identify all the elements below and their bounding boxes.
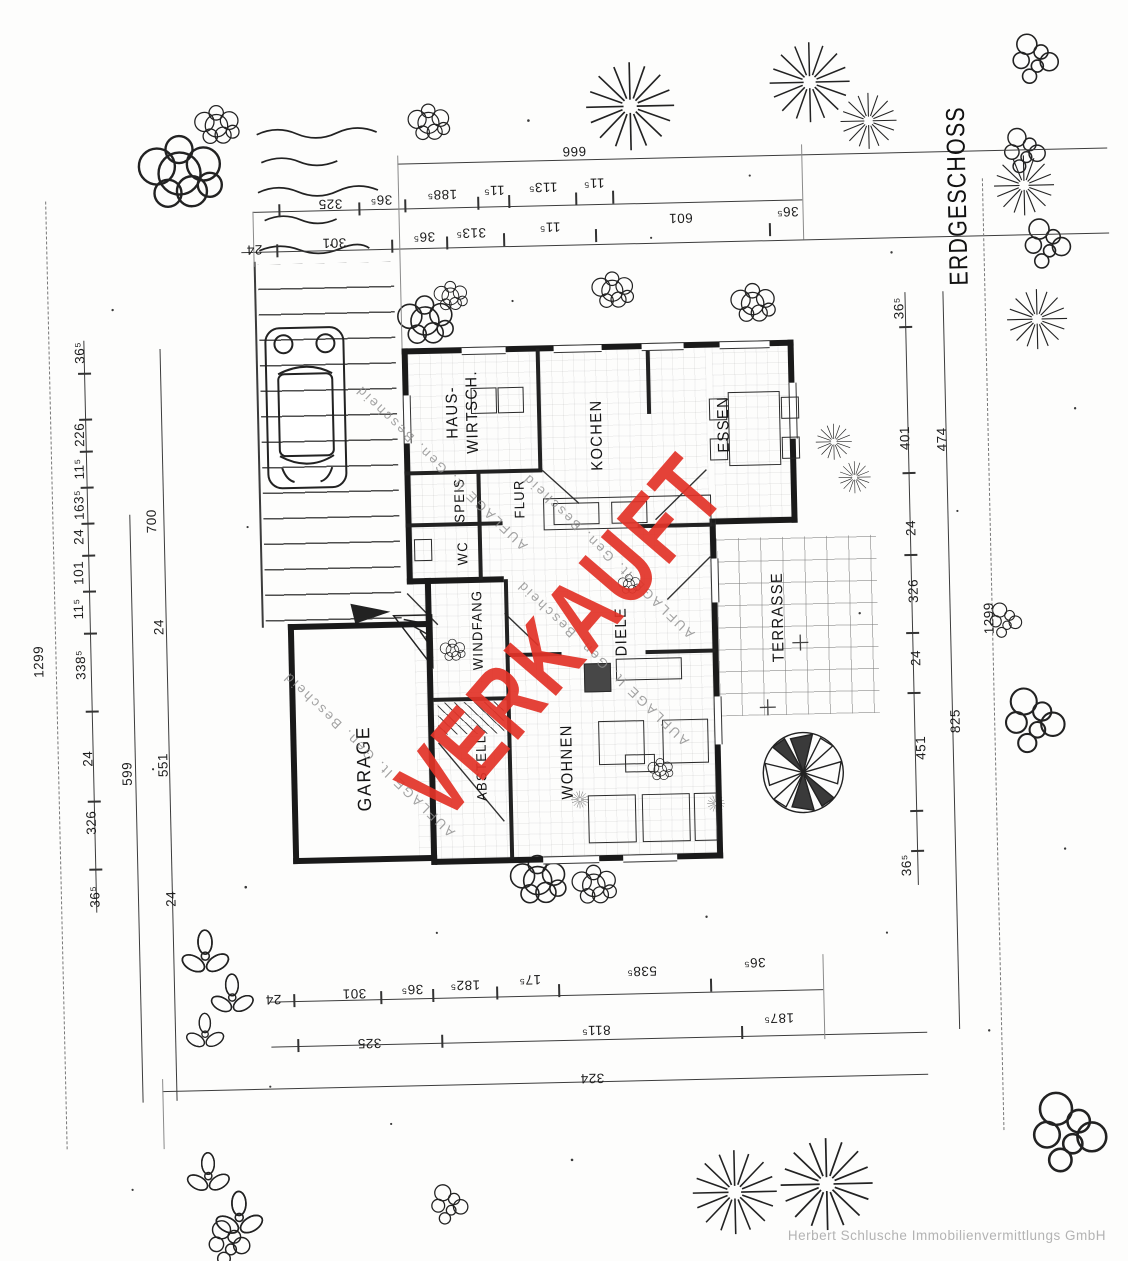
sunburst-tree-icon [993, 155, 1054, 216]
dim-label: 324 [580, 1071, 604, 1087]
dim-tick [81, 487, 94, 489]
dim-tick [911, 850, 924, 852]
dim-label: 811⁵ [581, 1022, 610, 1038]
dim-tick [78, 373, 91, 375]
dim-label: 700 [144, 509, 160, 533]
plan-title: ERDGESCHOSS [940, 106, 975, 286]
scribble-tree-icon [731, 283, 776, 322]
dim-tick [503, 233, 505, 246]
dim-tick [404, 199, 406, 212]
chair [782, 437, 800, 459]
dim-label: 36⁵ [743, 955, 765, 970]
dim-label: 36⁵ [72, 342, 87, 364]
flower-icon [184, 1152, 232, 1194]
dim-label: 17⁵ [519, 972, 541, 987]
coffee-table [625, 754, 655, 773]
dim-tick [432, 989, 434, 1002]
dim-tick [81, 523, 94, 525]
dim-tick [595, 229, 597, 242]
scan-content: 666 325 36⁵ 188⁵ 11⁵ 113⁵ 11⁵ 24 301 36⁵… [0, 0, 1128, 1261]
scribble-tree-icon [138, 135, 222, 207]
dim-label: 36⁵ [776, 204, 798, 219]
dim-tick [558, 984, 560, 997]
dim-label: 11⁵ [71, 598, 86, 619]
dim-tick [446, 236, 448, 249]
dim-label: 113⁵ [528, 179, 557, 195]
dim-tick [508, 195, 510, 208]
dim-label: 1299 [981, 602, 997, 634]
window [543, 855, 599, 864]
dim-label: 326 [83, 811, 99, 835]
dim-label: 325 [318, 196, 342, 212]
flower-icon [208, 974, 256, 1016]
dim-label: 601 [669, 210, 693, 226]
bush-icon [1033, 1092, 1107, 1172]
dim-tick [910, 810, 923, 812]
dim-tick [79, 419, 92, 421]
window [623, 853, 677, 862]
dim-label: 451 [913, 736, 929, 760]
dim-tick [293, 994, 295, 1007]
room-label-wc: WC [452, 541, 473, 566]
room-label-kochen: KOCHEN [587, 399, 609, 471]
dim-tick [82, 555, 95, 557]
scribble-tree-icon [572, 865, 617, 904]
appliance [497, 387, 524, 414]
flower-icon [179, 930, 232, 976]
dim-label: 11⁵ [539, 219, 560, 234]
dim-label: 325 [357, 1036, 381, 1052]
dining-table [728, 391, 782, 466]
window [714, 696, 723, 744]
sofa [642, 793, 691, 842]
window [719, 340, 769, 349]
dim-label: 24 [71, 529, 86, 545]
bush-icon [1005, 688, 1065, 753]
dim-tick [83, 591, 96, 593]
terrace-door [710, 558, 719, 602]
wc-fixture [414, 539, 432, 561]
room-label-hauswirtsch: HAUS- WIRTSCH. [442, 370, 484, 454]
dim-label: 401 [897, 426, 913, 450]
sunburst-tree-icon [692, 1149, 778, 1235]
dim-label: 313⁵ [456, 225, 486, 241]
dim-label: 101 [71, 561, 87, 585]
driveway-hatching [258, 262, 402, 625]
sofa [694, 792, 718, 841]
dim-label: 24 [908, 650, 923, 666]
dim-tick [297, 1039, 299, 1052]
dim-tick [278, 204, 280, 217]
sunburst-tree-icon [769, 41, 851, 123]
bush-icon [1013, 34, 1059, 84]
dim-tick [84, 633, 97, 635]
dim-tick [86, 710, 99, 712]
flower-icon [213, 1191, 266, 1237]
round-tree-icon [762, 732, 844, 814]
dandelion-icon [838, 461, 871, 494]
scribble-tree-icon [408, 104, 450, 140]
room-label-terrasse: TERRASSE [768, 572, 790, 663]
dim-label: 11⁵ [583, 175, 604, 190]
wavy-grass-lines [257, 128, 380, 255]
dim-label: 182⁵ [450, 977, 480, 993]
dim-label: 187⁵ [764, 1010, 794, 1026]
scribble-tree-icon [434, 281, 468, 310]
dim-tick [80, 451, 93, 453]
window [554, 344, 602, 353]
dim-tick [358, 202, 360, 215]
dim-label: 11⁵ [483, 183, 504, 198]
dim-label: 24 [80, 751, 95, 767]
dim-tick [380, 991, 382, 1004]
dim-label: 163⁵ [71, 490, 87, 520]
agency-credit: Herbert Schlusche Immobilienvermittlungs… [788, 1228, 1106, 1243]
dim-label: 36⁵ [401, 982, 423, 997]
sunburst-tree-icon [585, 61, 675, 151]
dim-label: 188⁵ [427, 187, 457, 203]
bush-icon [209, 1220, 250, 1261]
dim-label: 825 [947, 709, 963, 733]
dim-label: 24 [903, 520, 918, 536]
dim-label: 474 [934, 427, 950, 451]
sunburst-tree-icon [1006, 288, 1067, 349]
dim-label: 36⁵ [87, 885, 102, 907]
dim-label: 1299 [31, 646, 47, 678]
dim-tick [903, 472, 916, 474]
dim-tick [575, 193, 577, 206]
dandelion-icon [815, 423, 852, 460]
dim-tick [391, 240, 393, 253]
dim-tick [88, 800, 101, 802]
chair [781, 397, 799, 419]
bush-icon [1025, 218, 1071, 268]
room-label-essen: ESSEN [714, 396, 735, 453]
dim-label: 36⁵ [413, 229, 435, 244]
scanned-floor-plan-page: 666 325 36⁵ 188⁵ 11⁵ 113⁵ 11⁵ 24 301 36⁵… [0, 0, 1128, 1261]
dim-label: 551 [155, 753, 171, 777]
dim-label: 36⁵ [899, 854, 914, 876]
dim-label: 24 [265, 992, 281, 1007]
dim-label: 24 [163, 891, 178, 907]
scribble-tree-icon [592, 272, 634, 308]
dim-tick [710, 979, 712, 992]
dim-label: 538⁵ [627, 963, 657, 979]
sofa [588, 794, 637, 843]
dim-tick [612, 191, 614, 204]
dim-tick [904, 554, 917, 556]
dim-tick [741, 1026, 743, 1039]
scribble-tree-icon [194, 105, 239, 144]
window [462, 346, 506, 355]
dim-tick [276, 244, 278, 257]
sunburst-tree-icon [840, 92, 897, 149]
dim-label: 301 [322, 235, 346, 251]
dim-tick [907, 692, 920, 694]
dim-label: 338⁵ [73, 650, 89, 680]
dim-label: 301 [342, 986, 366, 1002]
dim-label: 24 [151, 619, 166, 635]
bush-icon [431, 1184, 468, 1224]
dim-label: 666 [562, 144, 586, 160]
room-label-wohnen: WOHNEN [557, 724, 579, 800]
dim-label: 11⁵ [71, 458, 86, 479]
dim-label: 326 [905, 579, 921, 603]
flower-icon [184, 1013, 226, 1050]
dim-label: 226 [72, 423, 88, 447]
dim-tick [89, 868, 102, 870]
dim-label: 36⁵ [370, 192, 392, 207]
window [642, 342, 684, 351]
dim-label: 599 [119, 762, 135, 786]
dim-tick [899, 326, 912, 328]
dim-label: 24 [246, 242, 262, 257]
dim-tick [906, 632, 919, 634]
dim-label: 36⁵ [891, 297, 906, 319]
dim-tick [441, 1035, 443, 1048]
dim-tick [496, 987, 498, 1000]
dim-tick [477, 197, 479, 210]
terrace-tiles [716, 535, 880, 717]
dim-tick [769, 223, 771, 236]
sunburst-tree-icon [780, 1137, 874, 1231]
